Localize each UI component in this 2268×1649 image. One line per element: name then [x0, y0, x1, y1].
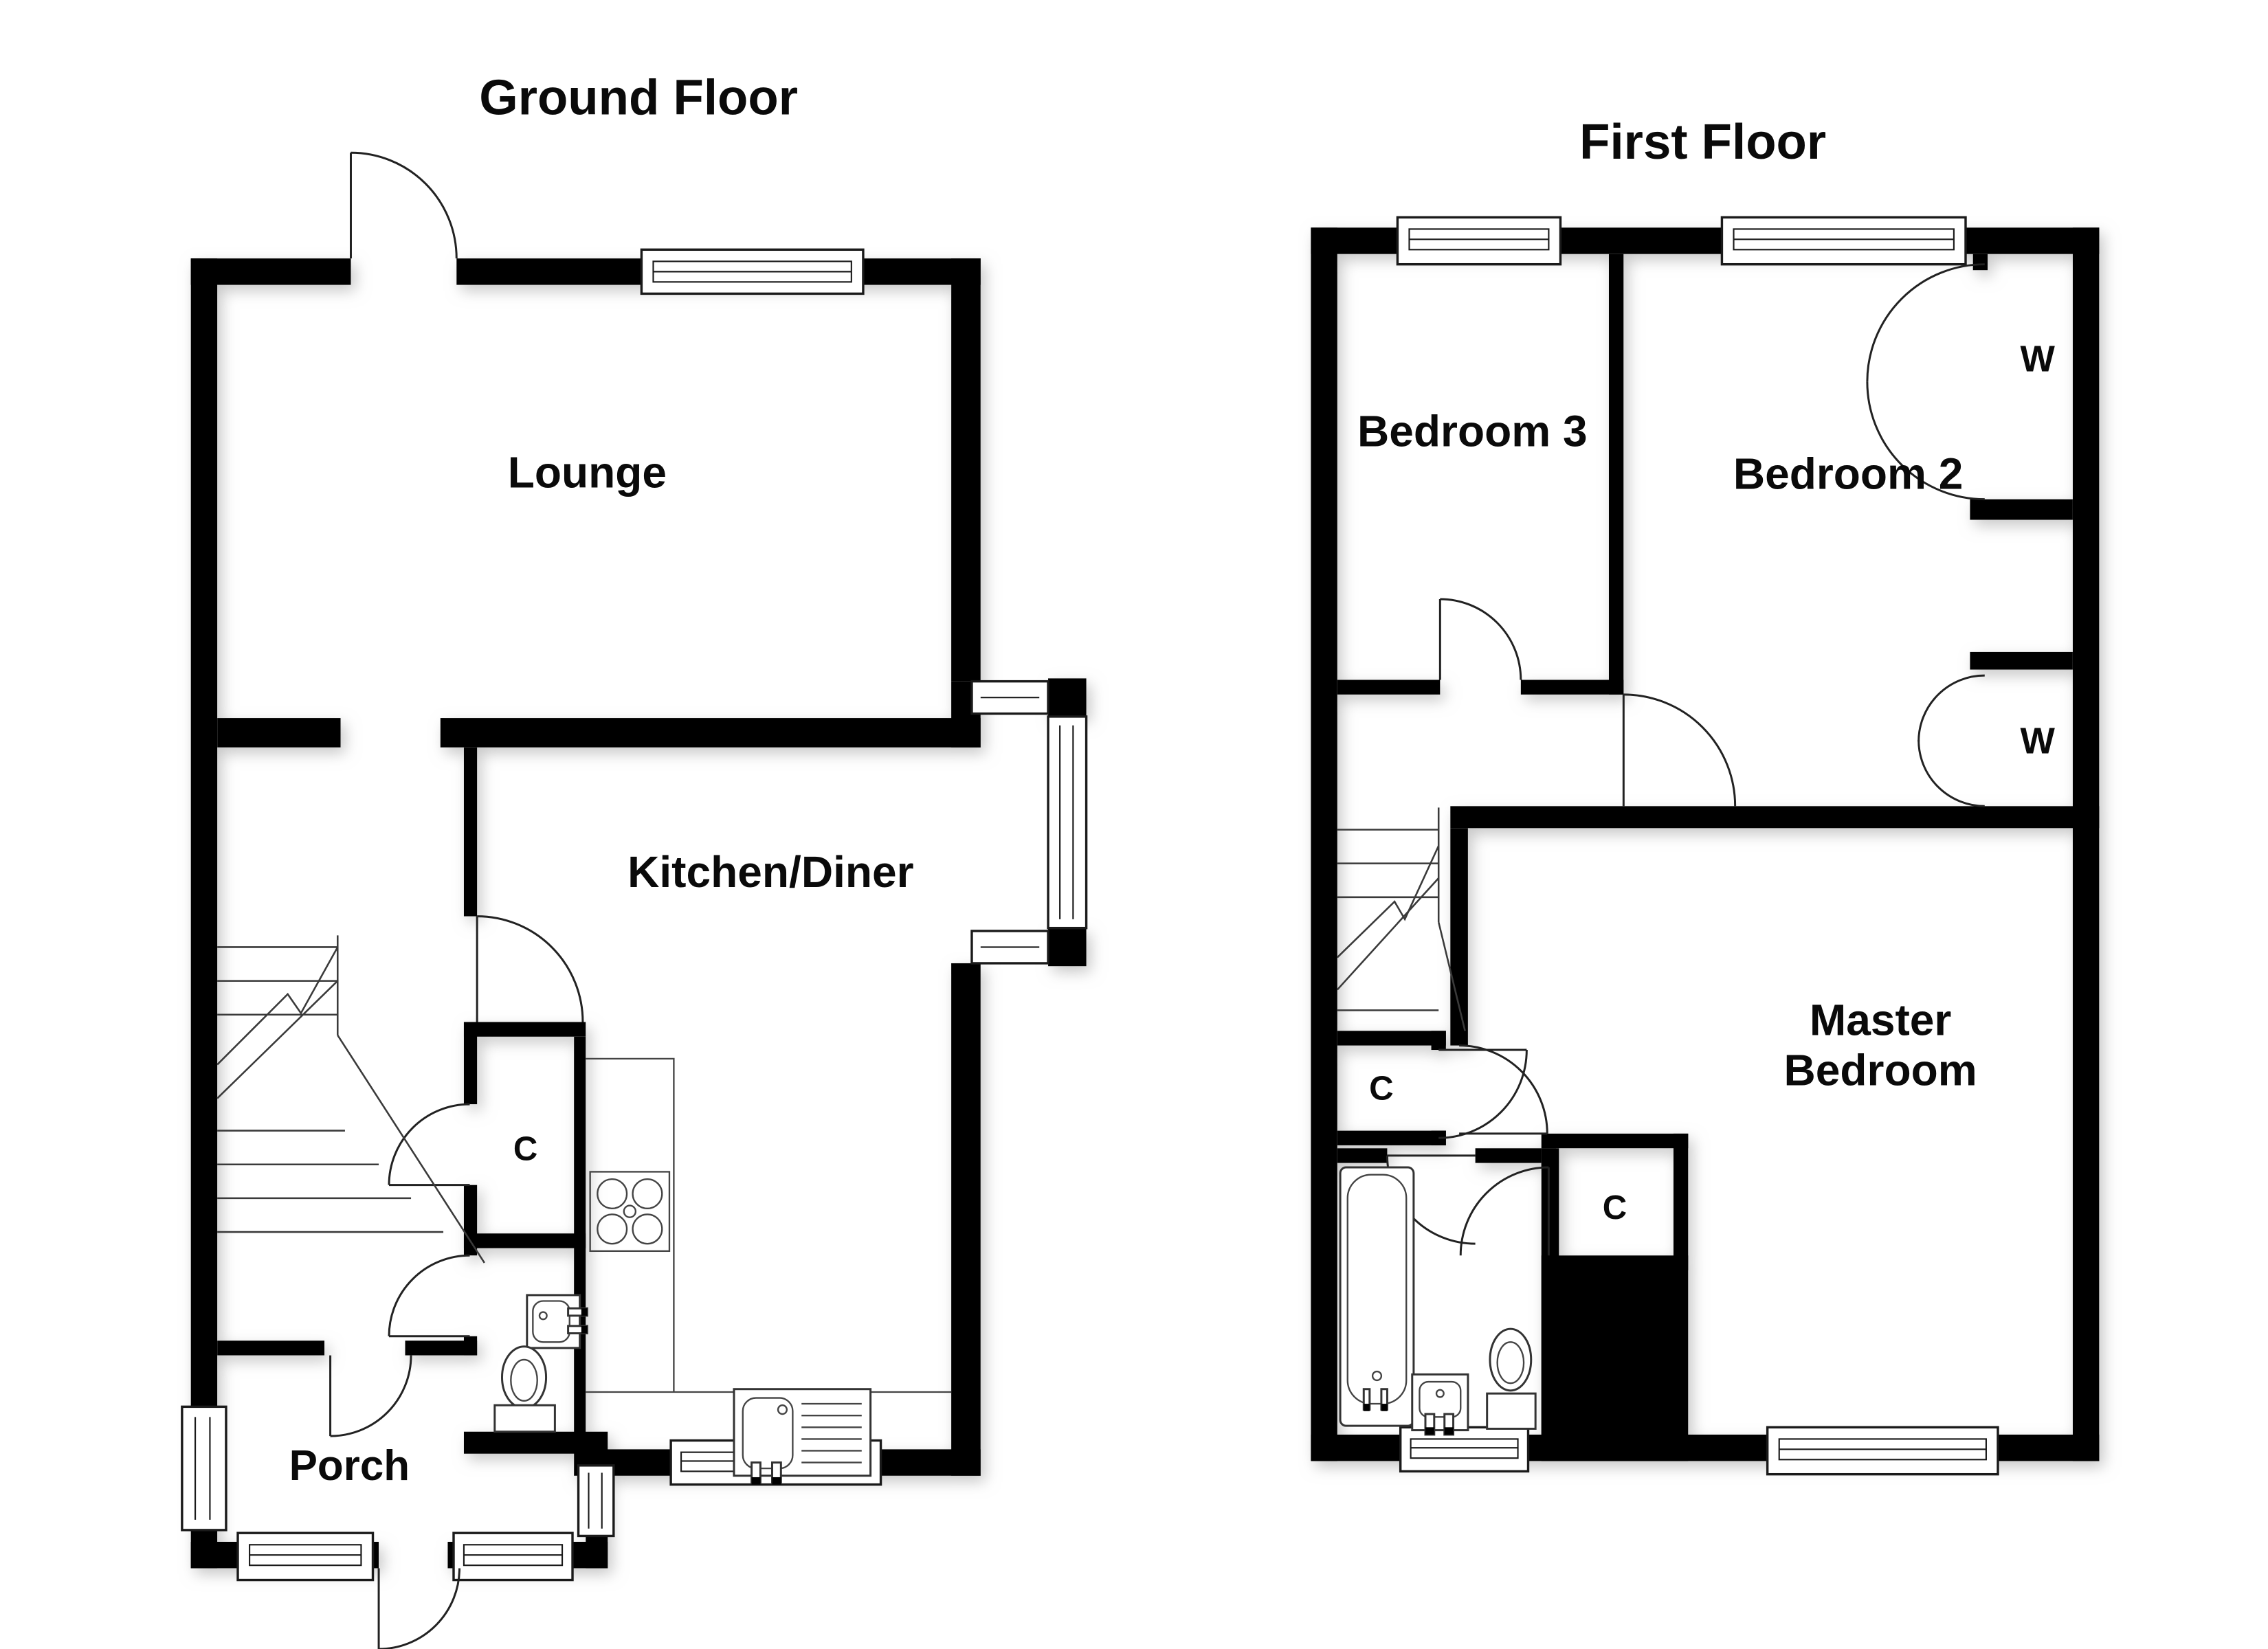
- door-arc: [1440, 599, 1520, 680]
- wall-segment: [1542, 1134, 1689, 1148]
- wall-segment: [1476, 1148, 1542, 1163]
- door-arc: [1459, 1046, 1547, 1134]
- wall-segment: [1521, 680, 1624, 694]
- wall-segment: [464, 1233, 586, 1248]
- stairs: [1337, 807, 1465, 1031]
- wall-segment: [405, 1340, 478, 1355]
- wall-segment: [464, 748, 477, 917]
- floorplan-canvas: Ground Floor Lounge Kitchen/Diner C Porc…: [0, 0, 2268, 1649]
- kitchen-diner-label: Kitchen/Diner: [627, 847, 913, 897]
- landing-closet-label: C: [1369, 1070, 1393, 1108]
- bedroom3-label: Bedroom 3: [1357, 407, 1588, 456]
- closet-label: C: [513, 1130, 537, 1167]
- wall-segment: [574, 1037, 586, 1450]
- lounge-label: Lounge: [508, 448, 667, 497]
- bathtub-icon: [1340, 1167, 1414, 1426]
- wall-segment: [1337, 680, 1441, 694]
- wall-segment: [1970, 652, 2073, 670]
- window: [579, 1466, 614, 1536]
- door-arc: [1460, 1167, 1548, 1255]
- first-floor-title: First Floor: [1579, 114, 1826, 170]
- sink-icon: [1412, 1374, 1468, 1435]
- bay-corner: [1048, 928, 1087, 967]
- ground-floor-title: Ground Floor: [479, 70, 798, 126]
- bay-window: [972, 682, 1087, 963]
- wall-segment: [1450, 828, 1468, 1045]
- wall-segment: [1311, 227, 1337, 1461]
- counter: [586, 1059, 951, 1392]
- master-bedroom-label-line1: Master: [1810, 996, 1952, 1045]
- porch-label: Porch: [289, 1442, 410, 1490]
- wardrobe-doors-arc: [1919, 675, 1985, 806]
- wall-segment: [951, 963, 981, 1476]
- door-arc: [351, 153, 456, 258]
- wall-segment: [1450, 806, 2099, 828]
- wardrobe-top-label: W: [2020, 339, 2055, 380]
- front-door-arc: [379, 1568, 459, 1649]
- wall-segment: [441, 718, 981, 748]
- door-arc: [389, 1255, 469, 1336]
- window: [454, 1533, 572, 1580]
- wall-segment: [2073, 227, 2099, 1461]
- bathroom-fixtures: [1340, 1167, 1535, 1435]
- door-arc: [477, 917, 583, 1022]
- wall-segment: [217, 1340, 324, 1355]
- window: [238, 1533, 373, 1580]
- wardrobe-bottom-label: W: [2020, 721, 2055, 761]
- window: [1722, 217, 1966, 264]
- bay-corner: [1048, 678, 1087, 717]
- floorplan-page: Ground Floor Lounge Kitchen/Diner C Porc…: [0, 0, 2268, 1649]
- hob-icon: [590, 1171, 669, 1250]
- wall-segment: [1337, 1031, 1446, 1045]
- wall-segment: [464, 1022, 586, 1036]
- sink-icon: [527, 1295, 588, 1348]
- window: [1397, 217, 1560, 264]
- wc-fixtures: [495, 1295, 588, 1432]
- window: [641, 249, 863, 293]
- wall-segment: [191, 258, 217, 1568]
- ground-floor-plan: Ground Floor Lounge Kitchen/Diner C Porc…: [182, 70, 1087, 1649]
- wall-segment: [1542, 1148, 1556, 1167]
- stairs: [217, 935, 485, 1263]
- wall-segment: [1337, 1148, 1388, 1163]
- wall-segment: [1609, 254, 1623, 695]
- closet-solid-block: [1542, 1255, 1689, 1461]
- wall-segment: [1432, 1031, 1446, 1050]
- door-arc: [1623, 695, 1735, 806]
- wall-segment: [217, 718, 340, 748]
- toilet-icon: [1487, 1329, 1535, 1428]
- wall-segment: [951, 258, 981, 681]
- kitchen-sink-icon: [734, 1389, 871, 1485]
- door-arc: [331, 1356, 411, 1437]
- wall-segment: [1973, 254, 1988, 271]
- kitchen-fixtures: [586, 1059, 951, 1485]
- window: [1768, 1427, 1998, 1474]
- master-bedroom-label-line2: Bedroom: [1784, 1045, 1977, 1095]
- door-arc: [389, 1104, 469, 1185]
- wall-segment: [1674, 1134, 1688, 1270]
- bedroom2-label: Bedroom 2: [1733, 449, 1964, 499]
- window: [182, 1406, 226, 1530]
- first-floor-plan: First Floor Bedroom 3 Bedroom 2 W W Mast…: [1311, 114, 2099, 1474]
- toilet-icon: [495, 1347, 555, 1432]
- master-closet-label: C: [1603, 1189, 1627, 1226]
- wall-segment: [1337, 1131, 1446, 1145]
- wall-segment: [1970, 500, 2073, 520]
- window: [1401, 1427, 1528, 1471]
